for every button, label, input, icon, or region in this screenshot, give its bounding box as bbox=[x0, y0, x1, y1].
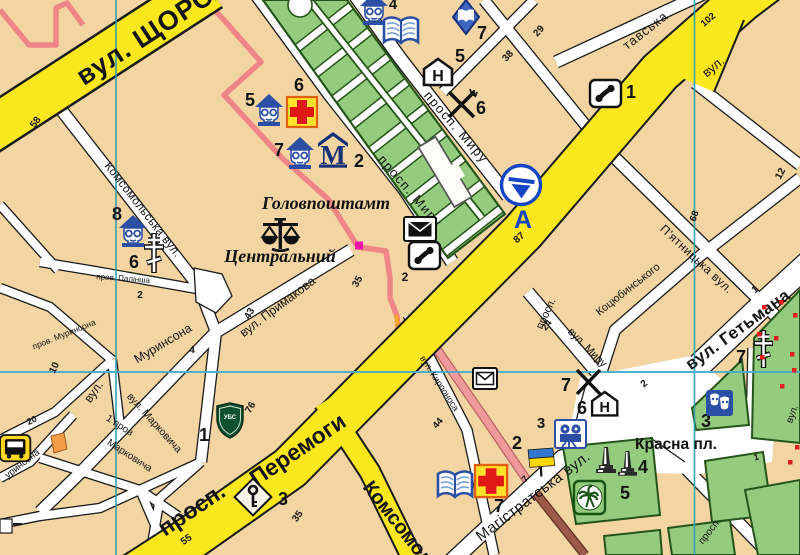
svg-text:2: 2 bbox=[512, 433, 522, 453]
svg-text:6: 6 bbox=[294, 75, 304, 95]
svg-text:6: 6 bbox=[577, 398, 587, 418]
svg-text:1: 1 bbox=[626, 82, 636, 102]
svg-text:Н: Н bbox=[432, 68, 444, 85]
svg-text:5: 5 bbox=[620, 483, 630, 503]
svg-text:2: 2 bbox=[137, 290, 143, 301]
svg-text:Красна пл.: Красна пл. bbox=[635, 436, 717, 453]
svg-text:Н: Н bbox=[599, 400, 609, 416]
svg-text:4: 4 bbox=[638, 457, 648, 477]
svg-text:4: 4 bbox=[189, 345, 195, 356]
svg-text:УБС: УБС bbox=[224, 415, 237, 421]
svg-text:7: 7 bbox=[477, 23, 487, 43]
svg-text:2: 2 bbox=[354, 151, 364, 171]
svg-text:3: 3 bbox=[537, 415, 545, 432]
svg-text:А: А bbox=[514, 206, 532, 234]
svg-text:7: 7 bbox=[561, 375, 571, 395]
svg-text:3: 3 bbox=[278, 489, 288, 509]
svg-text:8: 8 bbox=[112, 204, 122, 224]
svg-text:6: 6 bbox=[129, 252, 139, 272]
svg-text:2: 2 bbox=[402, 270, 409, 284]
svg-text:1: 1 bbox=[199, 425, 209, 445]
svg-text:6: 6 bbox=[476, 98, 486, 118]
svg-text:5: 5 bbox=[245, 90, 255, 110]
svg-text:7: 7 bbox=[494, 496, 504, 516]
svg-text:5: 5 bbox=[455, 46, 465, 66]
svg-text:7: 7 bbox=[736, 347, 746, 367]
svg-text:Головпоштамт: Головпоштамт bbox=[261, 193, 390, 213]
svg-text:7: 7 bbox=[274, 140, 284, 160]
svg-text:4: 4 bbox=[389, 0, 398, 13]
